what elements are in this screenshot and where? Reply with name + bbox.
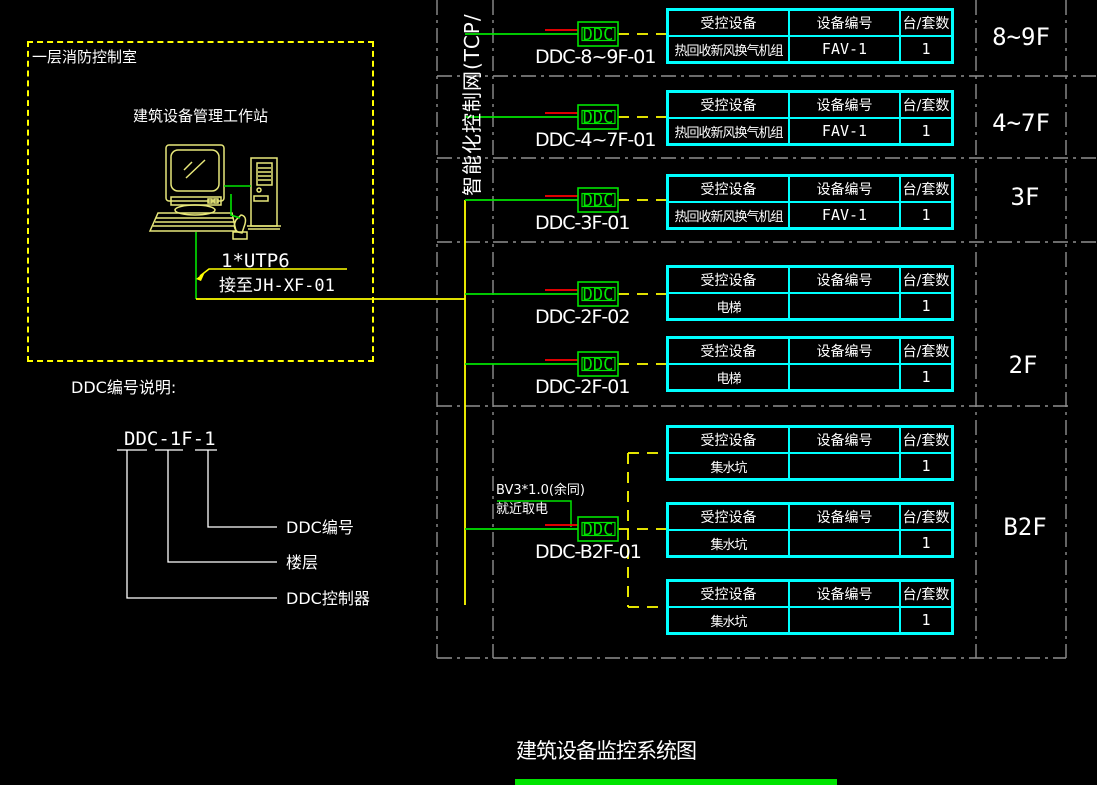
table-cell-device: 热回收新风换气机组 (668, 118, 789, 144)
ddc-unit: DDC (465, 282, 666, 306)
table-header-qty: 台/套数 (900, 10, 952, 36)
table-header-qty: 台/套数 (900, 504, 952, 530)
table-header-device-no: 设备编号 (789, 427, 900, 453)
table-header-device: 受控设备 (668, 92, 789, 118)
power-note-line1: BV3*1.0(余同) (496, 484, 585, 498)
legend-heading: DDC编号说明: (71, 379, 176, 397)
legend-callout-floor: 楼层 (286, 554, 318, 572)
table-cell-device: 热回收新风换气机组 (668, 202, 789, 228)
equipment-table: 受控设备设备编号台/套数集水坑1 (666, 425, 954, 481)
equipment-table: 受控设备设备编号台/套数热回收新风换气机组FAV-11 (666, 90, 954, 146)
ddc-box-label: DDC (583, 191, 614, 211)
floor-label-4-7f: 4~7F (992, 109, 1050, 137)
cable-spec-label: 1*UTP6 (221, 251, 290, 272)
legend-callout-controller: DDC控制器 (286, 590, 370, 608)
ddc-unit-label: DDC-B2F-01 (535, 542, 641, 563)
table-cell-qty: 1 (900, 36, 952, 62)
table-header-device-no: 设备编号 (789, 10, 900, 36)
power-note-line2: 就近取电 (496, 503, 548, 517)
table-cell-device-no (789, 293, 900, 319)
ddc-box-label: DDC (583, 520, 614, 540)
control-room-label: 一层消防控制室 (32, 49, 137, 66)
table-cell-device-no (789, 364, 900, 390)
table-cell-device-no (789, 607, 900, 633)
table-header-qty: 台/套数 (900, 427, 952, 453)
table-cell-qty: 1 (900, 530, 952, 556)
connect-to-label: 接至JH-XF-01 (219, 277, 335, 296)
ddc-unit-label: DDC-4~7F-01 (535, 130, 655, 151)
table-cell-qty: 1 (900, 364, 952, 390)
cad-canvas: DDCDDCDDCDDCDDCDDC 一层消防控制室 建筑设备管理工作站 1*U… (0, 0, 1097, 785)
table-header-device: 受控设备 (668, 427, 789, 453)
legend-callout-ddc-number: DDC编号 (286, 519, 354, 537)
table-cell-device-no: FAV-1 (789, 202, 900, 228)
equipment-table: 受控设备设备编号台/套数电梯1 (666, 336, 954, 392)
ddc-unit: DDC (465, 105, 666, 129)
ddc-unit-label: DDC-8~9F-01 (535, 47, 655, 68)
table-cell-qty: 1 (900, 118, 952, 144)
table-header-device: 受控设备 (668, 267, 789, 293)
title-underline (515, 779, 837, 785)
table-header-qty: 台/套数 (900, 338, 952, 364)
table-cell-device-no: FAV-1 (789, 36, 900, 62)
ddc-box-label: DDC (583, 285, 614, 305)
network-trunk-label: 智能化控制网(TCP/ (456, 0, 485, 196)
equipment-table: 受控设备设备编号台/套数集水坑1 (666, 502, 954, 558)
floor-label-3f: 3F (1011, 183, 1040, 211)
ddc-unit: DDC (465, 352, 666, 376)
floor-label-b2f: B2F (1003, 513, 1046, 541)
table-cell-device: 集水坑 (668, 453, 789, 479)
table-cell-qty: 1 (900, 293, 952, 319)
table-cell-device-no (789, 453, 900, 479)
table-cell-device: 热回收新风换气机组 (668, 36, 789, 62)
equipment-table: 受控设备设备编号台/套数热回收新风换气机组FAV-11 (666, 174, 954, 230)
table-header-qty: 台/套数 (900, 581, 952, 607)
table-header-device-no: 设备编号 (789, 338, 900, 364)
equipment-table: 受控设备设备编号台/套数热回收新风换气机组FAV-11 (666, 8, 954, 64)
ddc-unit-label: DDC-3F-01 (535, 213, 629, 234)
table-cell-qty: 1 (900, 453, 952, 479)
table-header-qty: 台/套数 (900, 176, 952, 202)
table-cell-device: 集水坑 (668, 530, 789, 556)
ddc-unit-label: DDC-2F-02 (535, 307, 629, 328)
floor-label-2f: 2F (1009, 351, 1038, 379)
legend-callout-lines (0, 440, 400, 680)
table-cell-device-no: FAV-1 (789, 118, 900, 144)
ddc-box-label: DDC (583, 355, 614, 375)
table-header-device: 受控设备 (668, 10, 789, 36)
table-cell-device: 电梯 (668, 293, 789, 319)
control-room-boundary (27, 41, 374, 362)
table-cell-qty: 1 (900, 607, 952, 633)
table-cell-qty: 1 (900, 202, 952, 228)
ddc-box-label: DDC (583, 25, 614, 45)
table-header-device-no: 设备编号 (789, 92, 900, 118)
ddc-unit-linework: DDCDDCDDCDDCDDCDDC (465, 22, 666, 541)
table-header-qty: 台/套数 (900, 267, 952, 293)
table-cell-device: 集水坑 (668, 607, 789, 633)
table-header-device: 受控设备 (668, 504, 789, 530)
table-header-device: 受控设备 (668, 176, 789, 202)
equipment-table: 受控设备设备编号台/套数集水坑1 (666, 579, 954, 635)
equipment-table: 受控设备设备编号台/套数电梯1 (666, 265, 954, 321)
ddc-box-label: DDC (583, 108, 614, 128)
ddc-unit: DDC (465, 22, 666, 46)
floor-label-8-9f: 8~9F (992, 23, 1050, 51)
ddc-unit: DDC (465, 517, 666, 541)
table-header-device-no: 设备编号 (789, 581, 900, 607)
table-cell-device: 电梯 (668, 364, 789, 390)
workstation-label: 建筑设备管理工作站 (133, 108, 268, 125)
table-header-device-no: 设备编号 (789, 176, 900, 202)
drawing-title: 建筑设备监控系统图 (516, 740, 696, 763)
b2f-dashed-connector (628, 453, 666, 607)
ddc-unit: DDC (465, 188, 666, 212)
table-cell-device-no (789, 530, 900, 556)
table-header-device-no: 设备编号 (789, 267, 900, 293)
table-header-qty: 台/套数 (900, 92, 952, 118)
table-header-device: 受控设备 (668, 581, 789, 607)
table-header-device: 受控设备 (668, 338, 789, 364)
table-header-device-no: 设备编号 (789, 504, 900, 530)
ddc-unit-label: DDC-2F-01 (535, 377, 629, 398)
